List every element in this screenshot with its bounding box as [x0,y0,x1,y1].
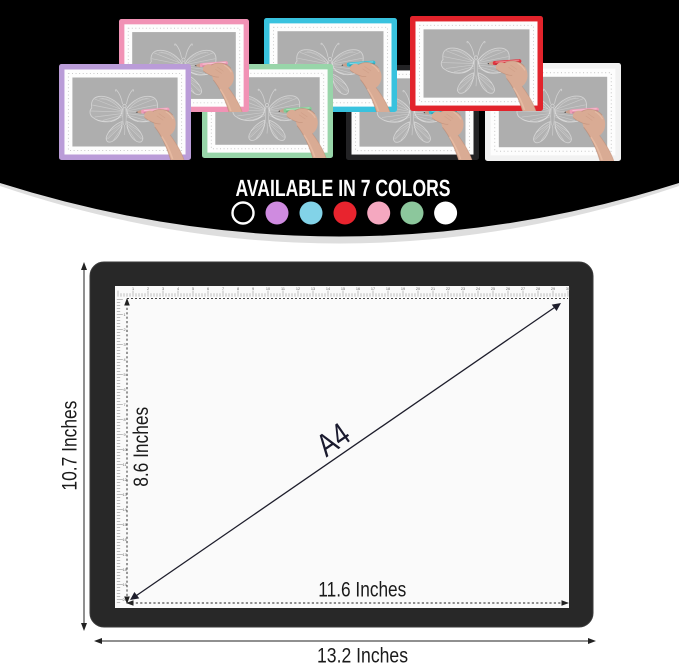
svg-text:30: 30 [566,287,570,291]
svg-text:29: 29 [551,287,555,291]
svg-text:AVAILABLE IN 7 COLORS: AVAILABLE IN 7 COLORS [236,175,451,201]
svg-text:11: 11 [123,463,127,467]
svg-text:11.6 Inches: 11.6 Inches [318,578,406,602]
svg-text:5: 5 [124,373,126,377]
svg-text:14: 14 [326,287,330,291]
svg-text:9: 9 [124,433,126,437]
svg-text:25: 25 [491,287,495,291]
svg-text:17: 17 [371,287,375,291]
svg-text:10: 10 [266,287,270,291]
svg-text:27: 27 [521,287,525,291]
svg-text:24: 24 [476,287,480,291]
svg-text:12: 12 [296,287,300,291]
svg-text:19: 19 [401,287,405,291]
svg-text:2: 2 [147,287,149,291]
svg-text:4: 4 [177,287,179,291]
svg-text:21: 21 [431,287,435,291]
svg-text:1: 1 [132,287,134,291]
svg-text:13.2 Inches: 13.2 Inches [317,644,408,665]
svg-text:10.7 Inches: 10.7 Inches [58,401,82,491]
svg-text:13: 13 [311,287,315,291]
svg-text:18: 18 [122,568,126,572]
svg-text:18: 18 [386,287,390,291]
svg-text:14: 14 [122,508,126,512]
svg-text:10: 10 [122,448,126,452]
svg-text:6: 6 [124,388,126,392]
svg-text:3: 3 [124,343,126,347]
svg-text:2: 2 [124,328,126,332]
svg-text:7: 7 [222,287,224,291]
svg-text:17: 17 [122,553,126,557]
svg-text:4: 4 [124,358,126,362]
svg-text:6: 6 [207,287,209,291]
svg-text:7: 7 [124,403,126,407]
svg-text:8: 8 [237,287,239,291]
svg-text:16: 16 [356,287,360,291]
svg-text:16: 16 [122,538,126,542]
svg-text:5: 5 [192,287,194,291]
svg-text:26: 26 [506,287,510,291]
svg-text:9: 9 [252,287,254,291]
svg-text:13: 13 [122,493,126,497]
svg-text:20: 20 [416,287,420,291]
svg-text:28: 28 [536,287,540,291]
svg-text:12: 12 [122,478,126,482]
svg-text:19: 19 [122,583,126,587]
svg-text:11: 11 [281,287,285,291]
svg-text:3: 3 [162,287,164,291]
svg-text:22: 22 [446,287,450,291]
svg-text:8.6 Inches: 8.6 Inches [129,407,153,487]
svg-text:15: 15 [122,523,126,527]
svg-text:15: 15 [341,287,345,291]
svg-text:1: 1 [124,313,126,317]
svg-text:8: 8 [124,418,126,422]
svg-text:23: 23 [461,287,465,291]
